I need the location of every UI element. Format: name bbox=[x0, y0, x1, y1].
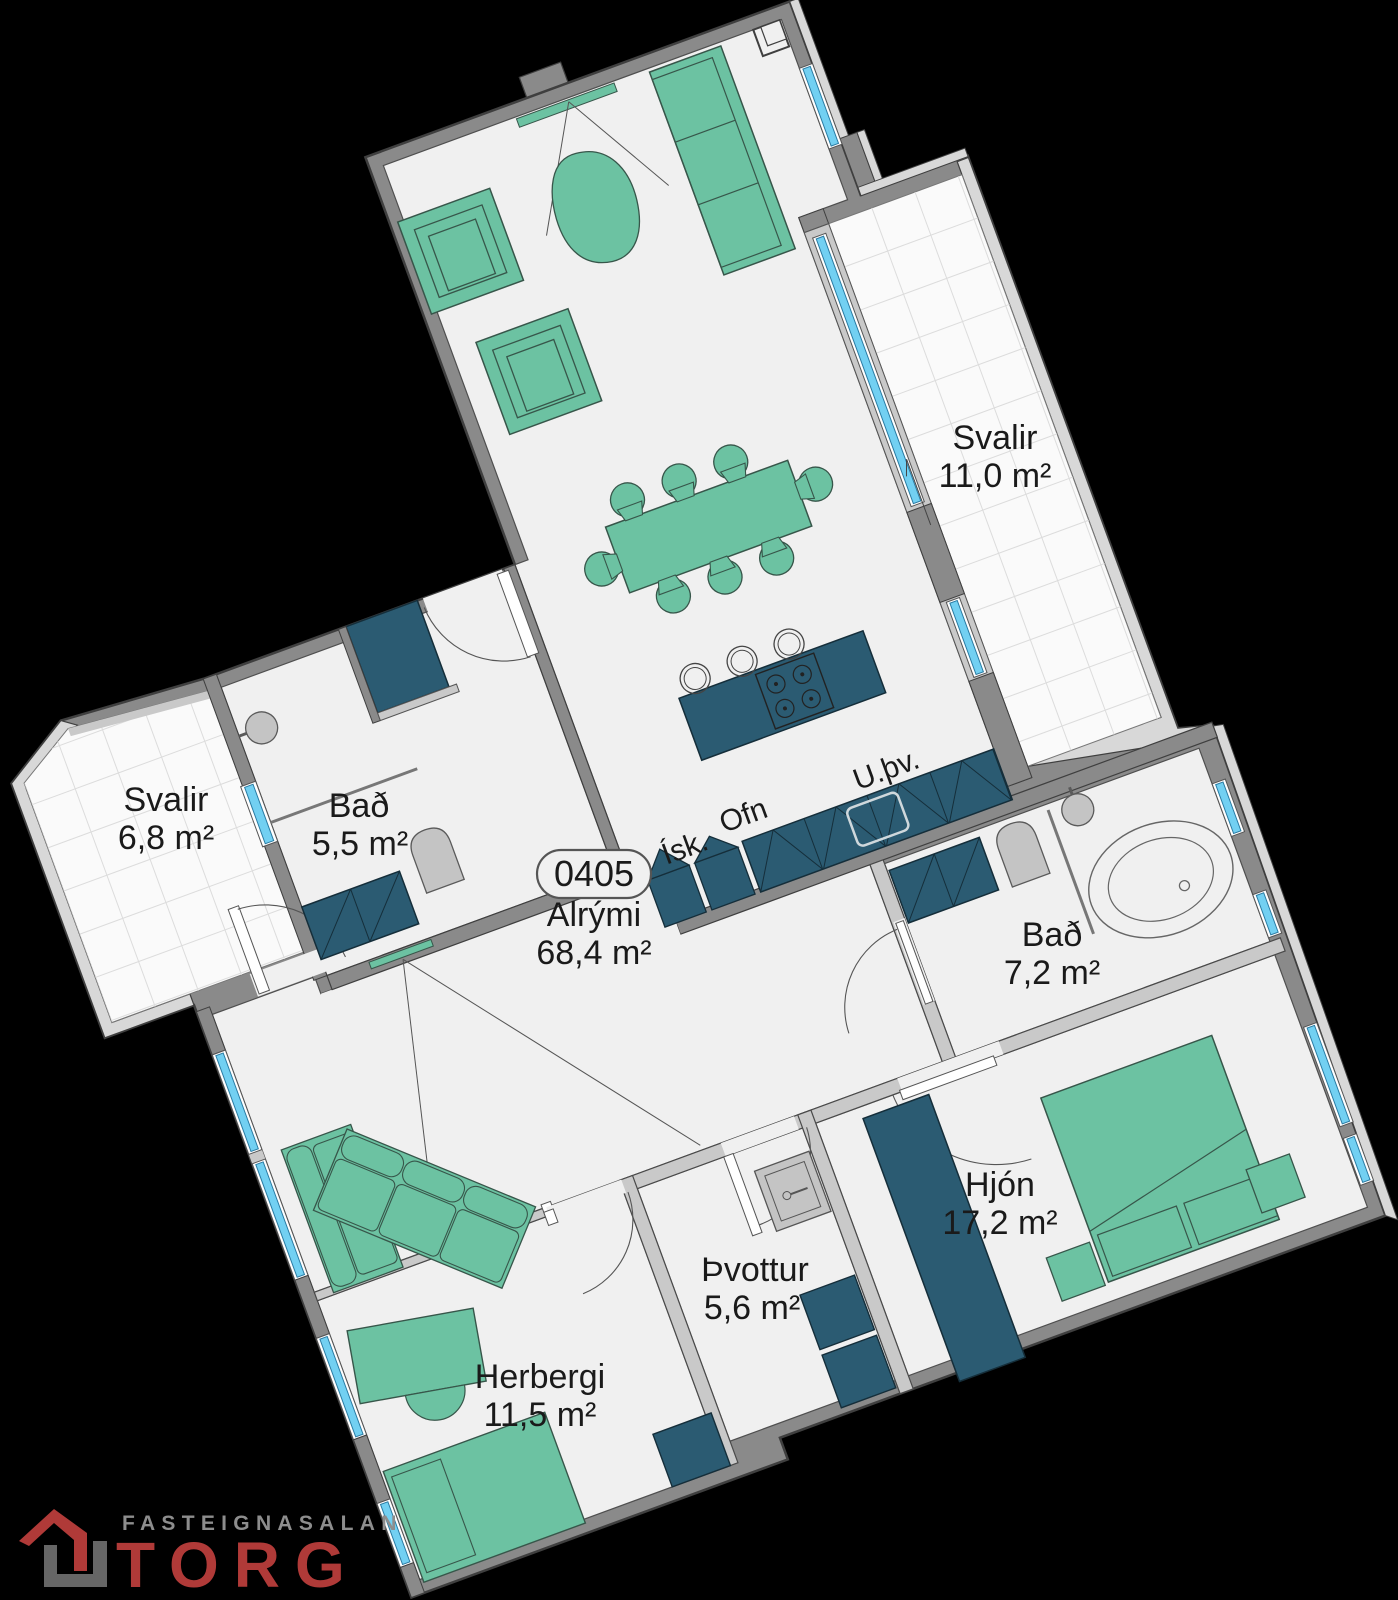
svg-text:Alrými: Alrými bbox=[547, 896, 641, 934]
svg-text:Svalir: Svalir bbox=[952, 419, 1037, 457]
svg-text:5,5 m²: 5,5 m² bbox=[312, 825, 408, 863]
svg-text:7,2 m²: 7,2 m² bbox=[1004, 954, 1100, 992]
svg-text:Bað: Bað bbox=[1022, 916, 1083, 954]
svg-text:TORG: TORG bbox=[116, 1529, 360, 1600]
svg-text:0405: 0405 bbox=[554, 853, 634, 894]
svg-text:Hjón: Hjón bbox=[965, 1166, 1035, 1204]
svg-text:Bað: Bað bbox=[329, 787, 390, 825]
svg-text:11,0 m²: 11,0 m² bbox=[939, 457, 1052, 495]
svg-text:68,4 m²: 68,4 m² bbox=[536, 934, 651, 972]
svg-text:5,6 m²: 5,6 m² bbox=[704, 1289, 800, 1327]
svg-text:17,2 m²: 17,2 m² bbox=[942, 1204, 1057, 1242]
svg-text:6,8 m²: 6,8 m² bbox=[118, 819, 214, 857]
svg-text:11,5 m²: 11,5 m² bbox=[484, 1396, 597, 1434]
svg-text:Herbergi: Herbergi bbox=[475, 1358, 605, 1396]
svg-text:Svalir: Svalir bbox=[123, 781, 208, 819]
svg-text:Þvottur: Þvottur bbox=[701, 1251, 809, 1289]
